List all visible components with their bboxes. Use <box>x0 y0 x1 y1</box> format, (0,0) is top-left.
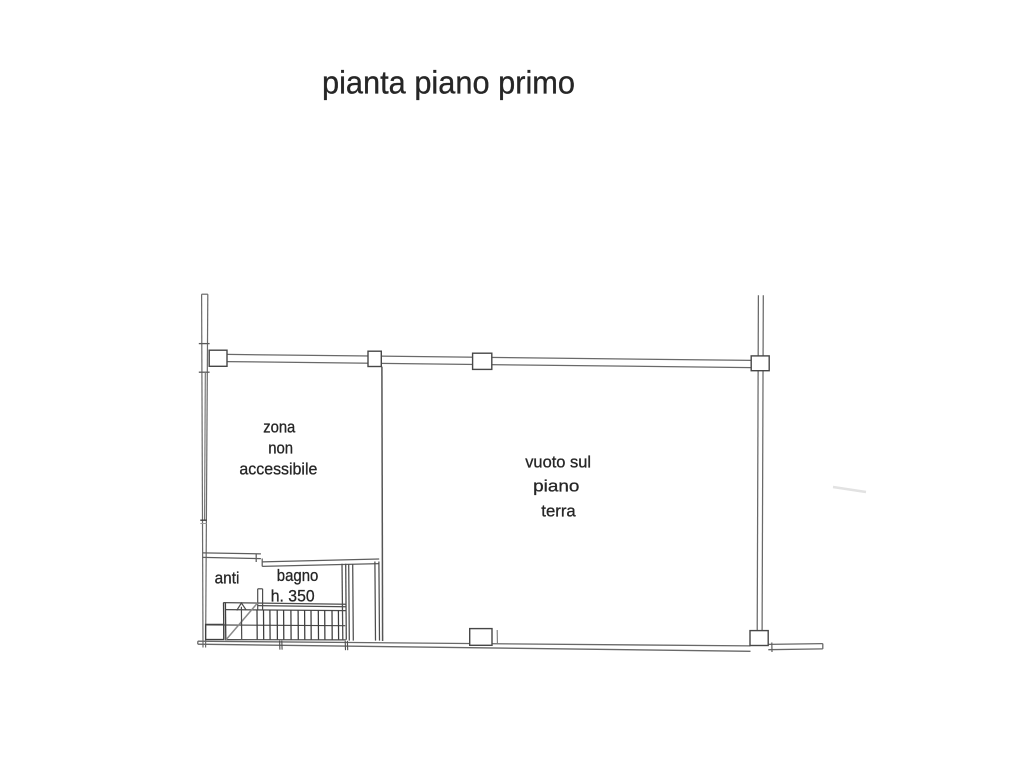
svg-text:anti: anti <box>215 569 240 588</box>
svg-text:terra: terra <box>541 501 576 520</box>
svg-text:pianta piano primo: pianta piano primo <box>322 65 575 101</box>
svg-text:piano: piano <box>533 476 579 495</box>
svg-text:accessibile: accessibile <box>239 459 317 478</box>
svg-text:zona: zona <box>263 418 296 437</box>
svg-text:h. 350: h. 350 <box>271 586 315 605</box>
svg-text:bagno: bagno <box>277 566 319 585</box>
svg-text:non: non <box>268 439 293 458</box>
svg-text:vuoto sul: vuoto sul <box>525 453 591 472</box>
